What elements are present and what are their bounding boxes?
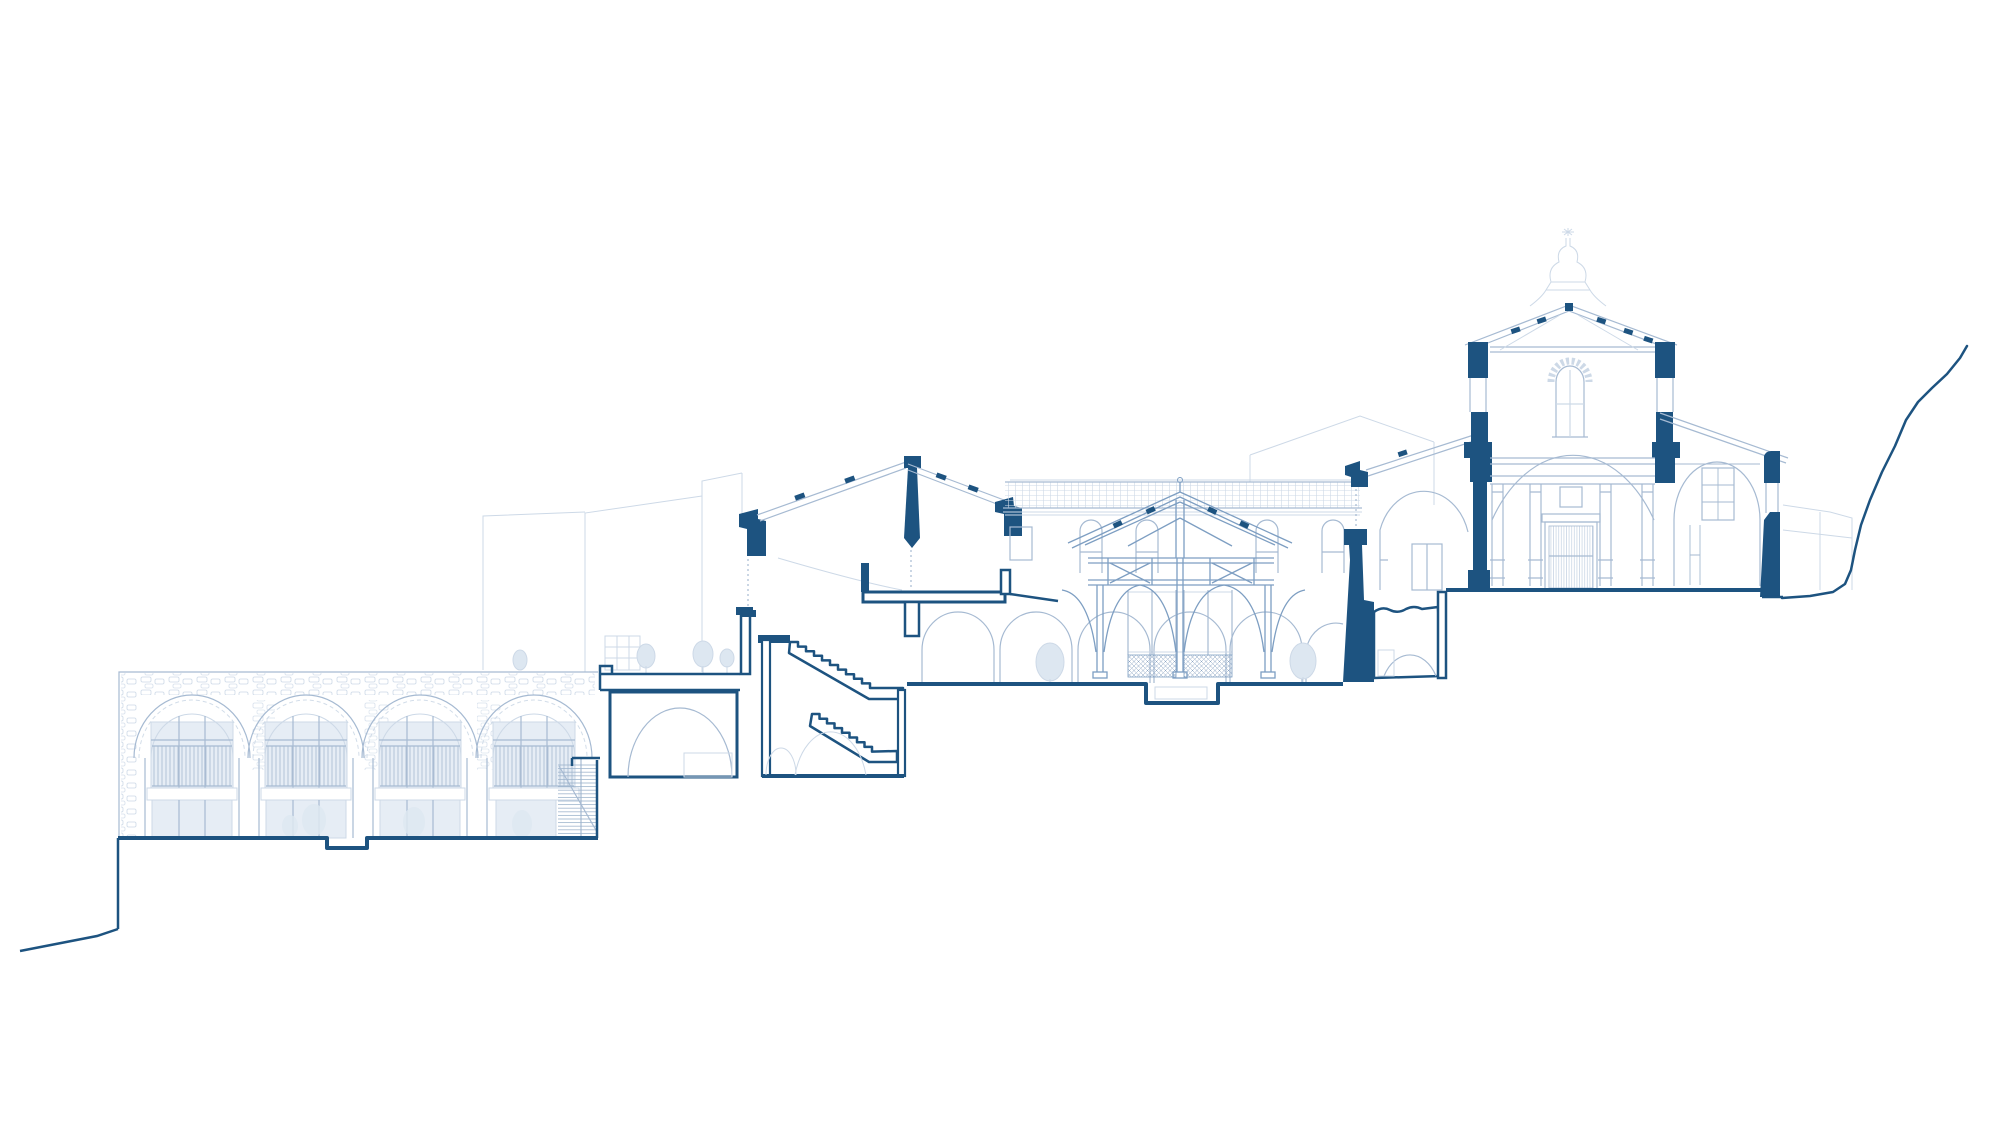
small-side-stair bbox=[558, 758, 600, 838]
hedge-trellis bbox=[1128, 655, 1176, 677]
church bbox=[1464, 228, 1852, 597]
timber-truss-pavilion bbox=[907, 478, 1343, 704]
stair-right-wall bbox=[898, 690, 905, 776]
entablature bbox=[1490, 458, 1655, 484]
parapet-cut-right bbox=[1655, 342, 1675, 378]
side-chapel bbox=[1674, 462, 1760, 586]
upper-floor-slab bbox=[863, 592, 1005, 602]
floor-line-left bbox=[118, 838, 598, 848]
pit-inner bbox=[1155, 687, 1207, 699]
tree bbox=[1290, 643, 1316, 679]
tiled-roof bbox=[1005, 482, 1360, 508]
parapet-cut-left bbox=[1468, 342, 1488, 378]
undercroft-right-wall bbox=[1438, 592, 1446, 678]
background-building-right bbox=[1783, 505, 1852, 590]
stair-flight-upper bbox=[789, 642, 903, 699]
roof-slope-left bbox=[757, 462, 906, 521]
section-drawing-svg bbox=[0, 0, 1999, 1140]
roof-slope-right bbox=[908, 464, 1004, 506]
terrain-left bbox=[20, 929, 118, 951]
lantern-and-cross bbox=[1530, 228, 1606, 306]
dome-arc bbox=[1492, 455, 1654, 520]
portal-door bbox=[1542, 487, 1600, 590]
nave-cut-wall-left bbox=[1464, 412, 1492, 590]
nave-cut-wall-right bbox=[1652, 412, 1680, 483]
eave-cut-left bbox=[739, 509, 766, 556]
church-roof bbox=[1465, 305, 1677, 350]
terrain-right bbox=[1782, 346, 1967, 598]
truss-members bbox=[1085, 500, 1275, 585]
stair-left-wall bbox=[762, 640, 770, 776]
terrace-parapet bbox=[741, 614, 750, 674]
retaining-wall-undercroft bbox=[1343, 432, 1483, 682]
clerestory-window bbox=[1551, 361, 1589, 437]
outer-pier-cut bbox=[1760, 451, 1780, 597]
retaining-wall-cut bbox=[1343, 529, 1374, 682]
stair-flight-lower bbox=[810, 714, 897, 762]
hedge-trellis bbox=[1184, 655, 1232, 677]
stone-arcade-building bbox=[119, 672, 598, 838]
pavilion-ground bbox=[907, 684, 1343, 703]
tree bbox=[1036, 643, 1064, 681]
architectural-section-drawing bbox=[0, 0, 1999, 1140]
